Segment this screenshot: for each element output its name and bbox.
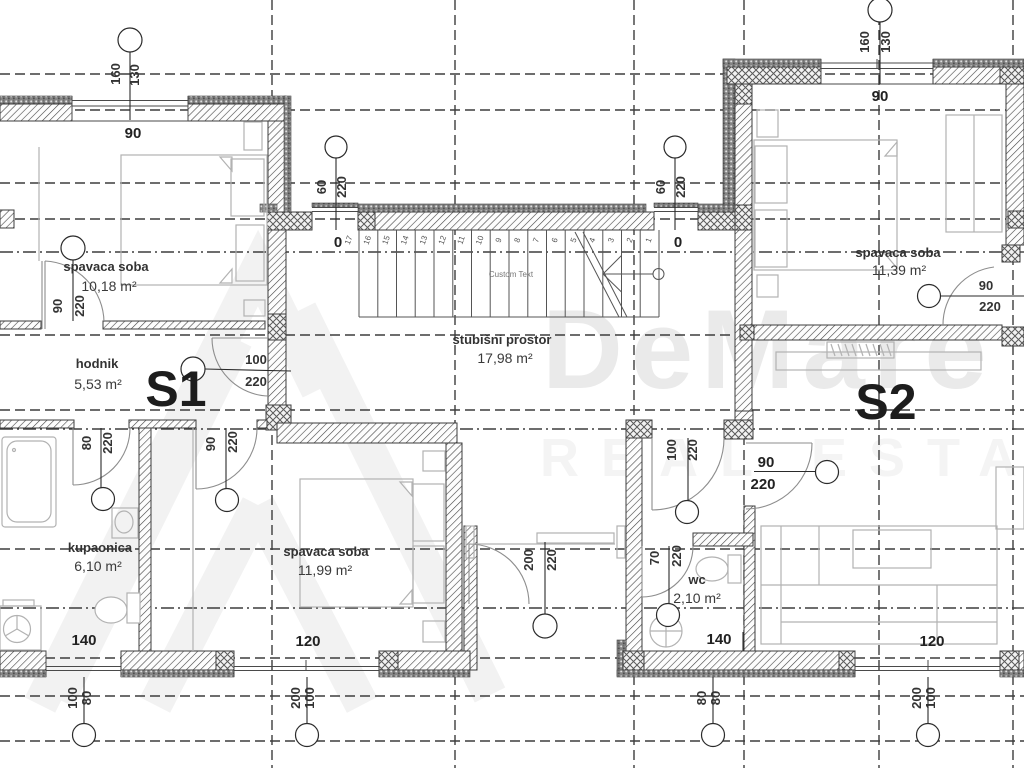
svg-text:S1: S1 [145, 361, 206, 417]
svg-text:90: 90 [758, 454, 775, 471]
svg-text:90: 90 [125, 125, 142, 142]
svg-text:220: 220 [544, 549, 559, 571]
svg-text:spavaca soba: spavaca soba [283, 544, 369, 559]
svg-text:hodnik: hodnik [76, 356, 119, 371]
svg-text:2,10 m²: 2,10 m² [673, 590, 721, 606]
svg-text:80: 80 [79, 691, 94, 705]
svg-text:80: 80 [694, 691, 709, 705]
svg-text:80: 80 [79, 436, 94, 450]
svg-text:11,99 m²: 11,99 m² [298, 562, 353, 578]
svg-text:S2: S2 [855, 374, 916, 430]
svg-text:90: 90 [872, 88, 889, 105]
svg-text:220: 220 [750, 476, 775, 493]
svg-text:80: 80 [708, 691, 723, 705]
svg-text:wc: wc [687, 572, 705, 587]
svg-text:220: 220 [334, 176, 349, 198]
svg-text:kupaonica: kupaonica [68, 540, 133, 555]
svg-text:100: 100 [65, 687, 80, 709]
svg-text:220: 220 [673, 176, 688, 198]
svg-text:220: 220 [100, 432, 115, 454]
svg-text:140: 140 [706, 631, 731, 648]
svg-text:120: 120 [295, 633, 320, 650]
svg-text:130: 130 [127, 64, 142, 86]
svg-text:spavaca soba: spavaca soba [855, 245, 941, 260]
svg-text:100: 100 [245, 352, 267, 367]
svg-text:0: 0 [674, 234, 682, 251]
svg-text:160: 160 [857, 31, 872, 53]
svg-text:stubišni prostor: stubišni prostor [453, 332, 552, 347]
svg-text:100: 100 [923, 687, 938, 709]
svg-text:Custom Text: Custom Text [489, 270, 534, 279]
svg-text:90: 90 [979, 278, 993, 293]
svg-text:120: 120 [919, 633, 944, 650]
svg-text:140: 140 [71, 632, 96, 649]
svg-text:200: 200 [909, 687, 924, 709]
svg-text:220: 220 [225, 431, 240, 453]
svg-text:5,53 m²: 5,53 m² [74, 376, 122, 392]
svg-text:11,39 m²: 11,39 m² [872, 262, 927, 278]
svg-text:90: 90 [50, 299, 65, 313]
svg-text:60: 60 [653, 180, 668, 194]
svg-text:90: 90 [203, 437, 218, 451]
svg-text:130: 130 [878, 31, 893, 53]
svg-text:10,18 m²: 10,18 m² [81, 278, 137, 294]
svg-text:200: 200 [288, 687, 303, 709]
svg-text:0: 0 [334, 234, 342, 251]
svg-text:100: 100 [302, 687, 317, 709]
svg-text:70: 70 [647, 551, 662, 565]
svg-text:220: 220 [669, 545, 684, 567]
svg-text:160: 160 [108, 63, 123, 85]
svg-text:17,98 m²: 17,98 m² [477, 350, 533, 366]
svg-text:220: 220 [72, 295, 87, 317]
svg-text:spavaca soba: spavaca soba [63, 259, 149, 274]
svg-text:REAL ESTATE: REAL ESTATE [540, 428, 1024, 488]
svg-text:220: 220 [245, 374, 267, 389]
svg-text:6,10 m²: 6,10 m² [74, 558, 122, 574]
svg-text:200: 200 [521, 549, 536, 571]
svg-text:220: 220 [979, 299, 1001, 314]
svg-text:60: 60 [314, 180, 329, 194]
svg-text:100: 100 [664, 439, 679, 461]
svg-text:220: 220 [685, 439, 700, 461]
